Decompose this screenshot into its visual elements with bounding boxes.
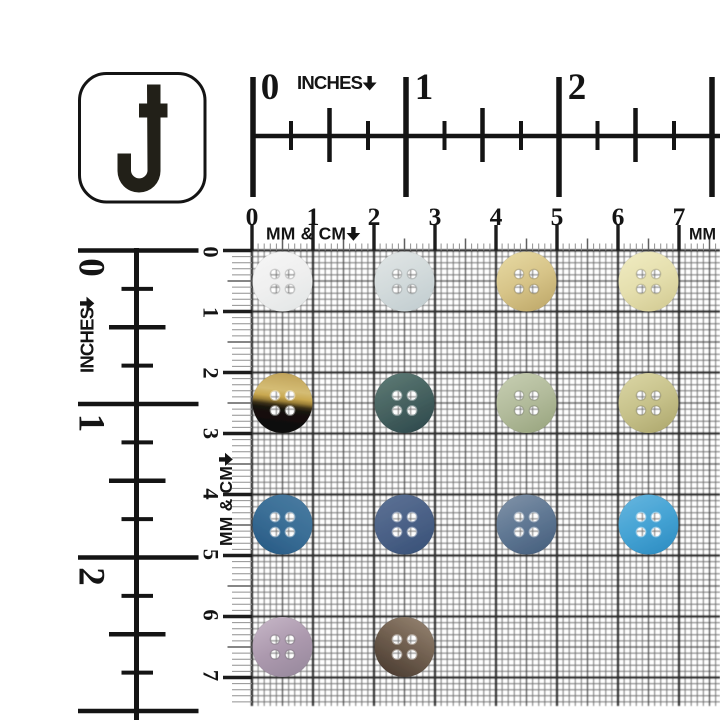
svg-text:0: 0 xyxy=(261,67,280,108)
svg-text:0: 0 xyxy=(199,246,224,257)
svg-text:5: 5 xyxy=(551,202,564,231)
svg-text:3: 3 xyxy=(429,202,442,231)
svg-text:3: 3 xyxy=(199,428,224,439)
svg-text:4: 4 xyxy=(490,202,503,231)
svg-text:1: 1 xyxy=(199,307,224,318)
svg-text:0: 0 xyxy=(71,258,112,277)
svg-text:2: 2 xyxy=(71,567,112,586)
svg-text:6: 6 xyxy=(199,609,224,620)
svg-text:MM & CM: MM & CM xyxy=(266,224,346,244)
svg-text:7: 7 xyxy=(199,670,224,681)
svg-text:6: 6 xyxy=(612,202,625,231)
svg-text:0: 0 xyxy=(246,202,259,231)
svg-text:5: 5 xyxy=(199,549,224,560)
svg-text:INCHES: INCHES xyxy=(77,307,98,373)
svg-text:2: 2 xyxy=(199,367,224,378)
svg-text:1: 1 xyxy=(71,414,112,433)
svg-text:INCHES: INCHES xyxy=(297,72,363,93)
svg-text:2: 2 xyxy=(568,67,587,108)
svg-text:MM: MM xyxy=(689,226,716,244)
svg-text:1: 1 xyxy=(415,67,434,108)
svg-text:2: 2 xyxy=(368,202,381,231)
svg-text:7: 7 xyxy=(673,202,686,231)
svg-text:MM & CM: MM & CM xyxy=(216,466,236,546)
